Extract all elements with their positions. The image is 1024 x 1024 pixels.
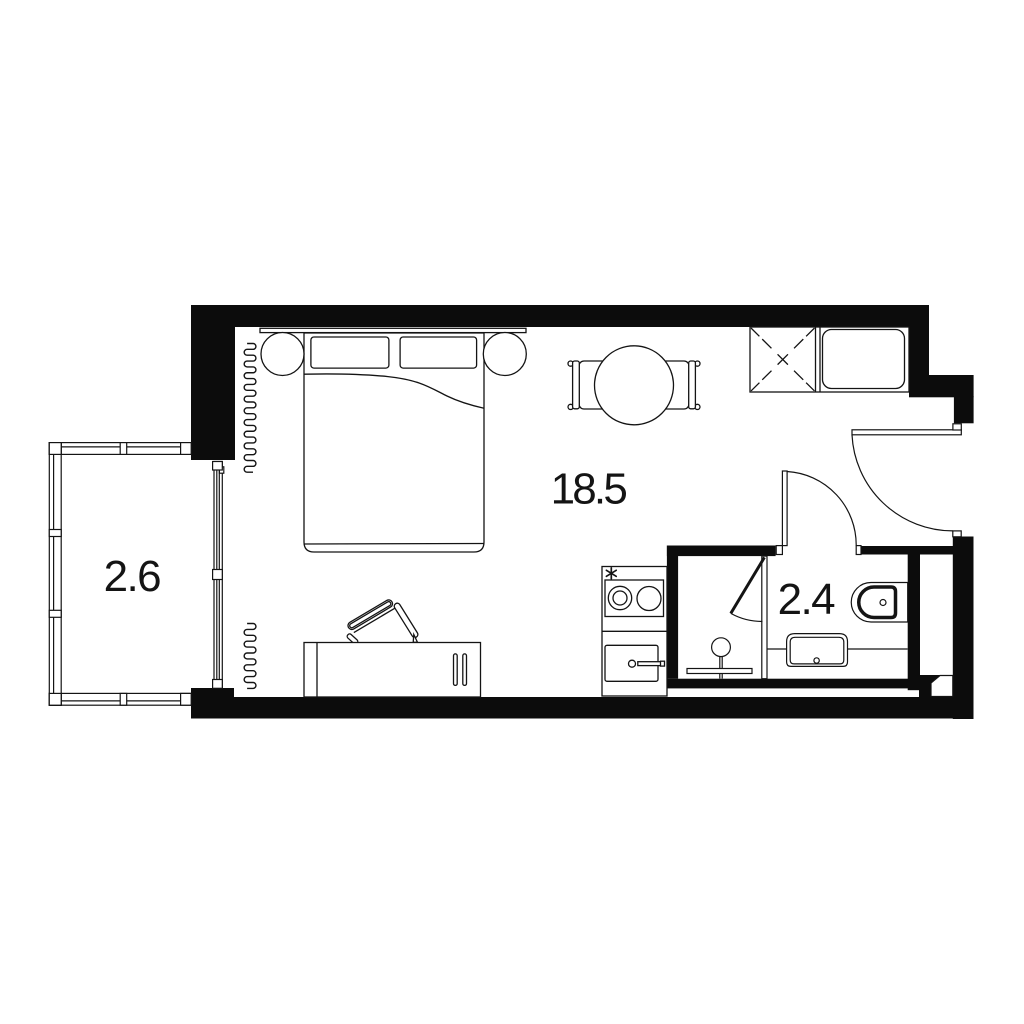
svg-text:18.5: 18.5	[551, 465, 627, 514]
svg-text:2.4: 2.4	[778, 575, 835, 624]
svg-text:2.6: 2.6	[104, 552, 160, 601]
